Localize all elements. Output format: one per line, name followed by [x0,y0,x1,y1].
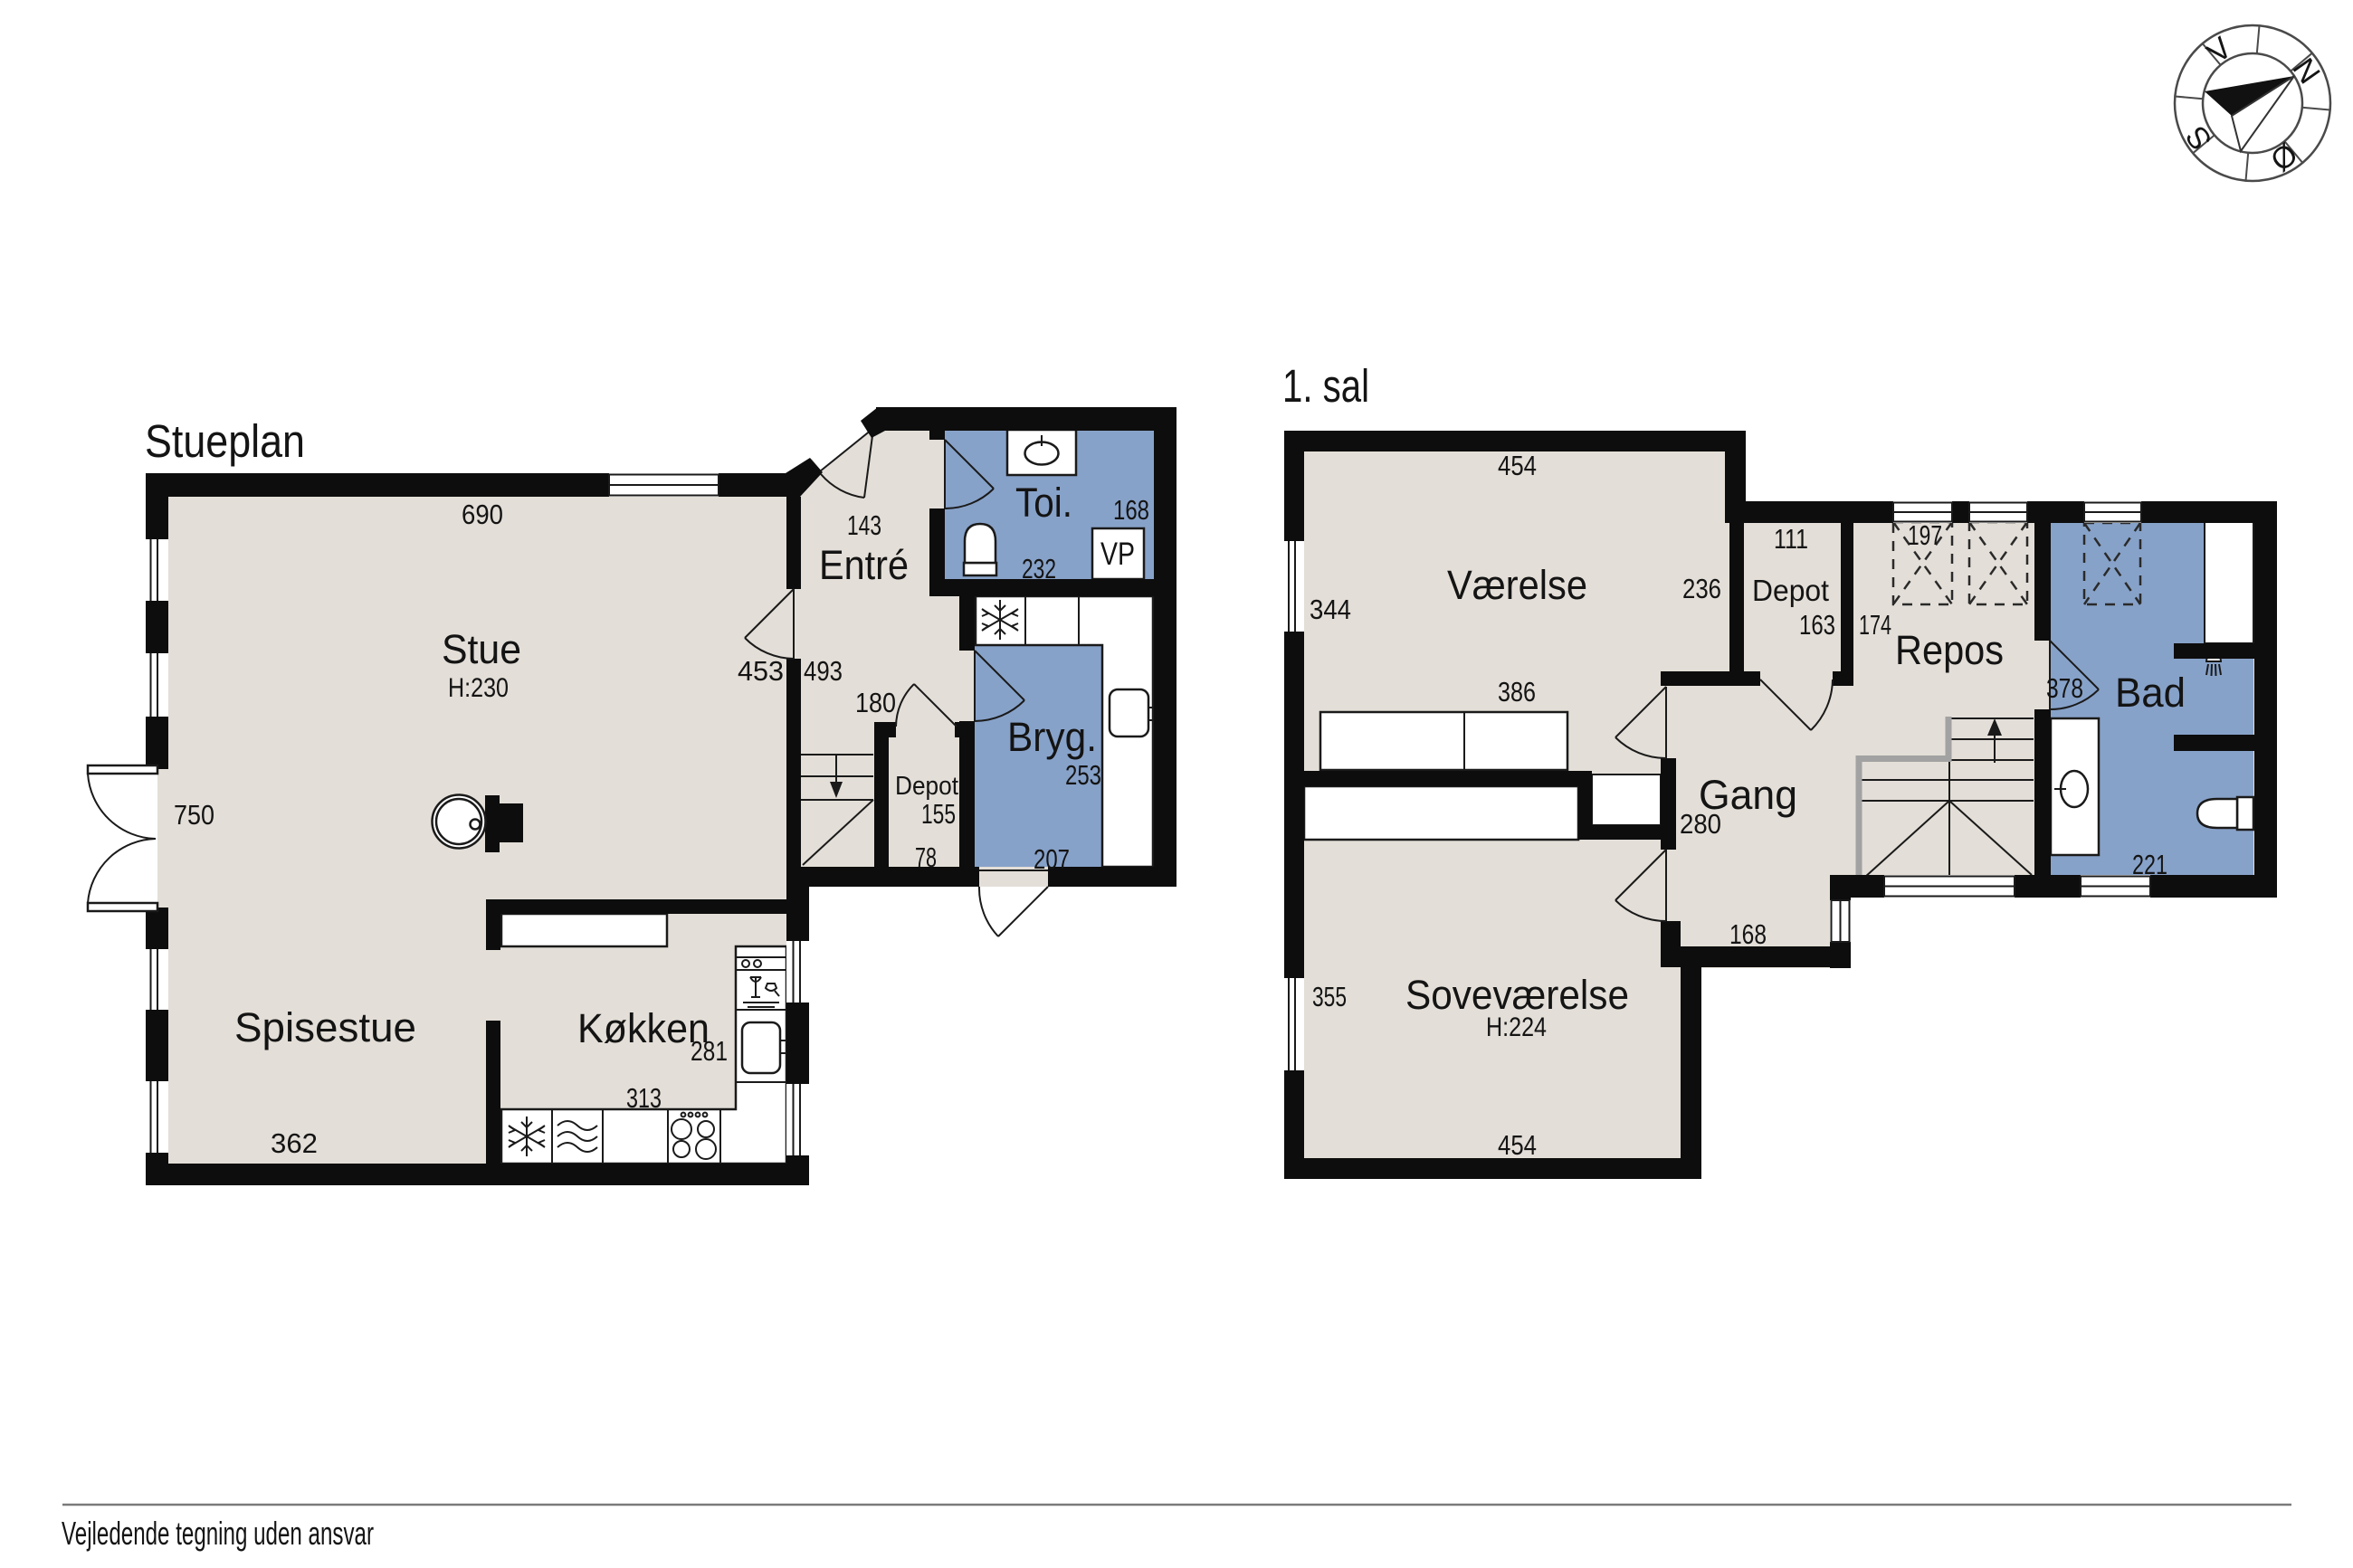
svg-text:750: 750 [174,799,214,831]
svg-text:253: 253 [1065,759,1101,791]
svg-text:454: 454 [1498,450,1537,481]
svg-text:Stueplan: Stueplan [145,415,305,467]
svg-text:378: 378 [2046,672,2083,704]
svg-text:168: 168 [1113,494,1149,526]
svg-text:493: 493 [804,655,843,687]
svg-text:280: 280 [1680,808,1721,840]
svg-text:Depot: Depot [895,772,958,801]
svg-text:355: 355 [1312,981,1347,1012]
svg-text:Værelse: Værelse [1447,562,1587,608]
svg-text:Soveværelse: Soveværelse [1405,972,1629,1018]
svg-text:78: 78 [915,841,937,873]
svg-text:281: 281 [691,1035,728,1067]
svg-text:Entré: Entré [819,542,909,588]
svg-text:143: 143 [847,509,881,541]
svg-text:Repos: Repos [1895,627,2004,673]
svg-text:232: 232 [1022,553,1056,584]
svg-text:207: 207 [1034,843,1070,875]
svg-text:Toi.: Toi. [1015,480,1072,526]
svg-text:453: 453 [738,655,784,687]
svg-text:Vejledende tegning uden ansvar: Vejledende tegning uden ansvar [62,1515,374,1552]
svg-text:344: 344 [1310,594,1351,625]
svg-text:H:224: H:224 [1486,1012,1547,1042]
svg-text:Bad: Bad [2115,670,2186,716]
svg-text:Spisestue: Spisestue [234,1004,416,1050]
svg-text:Stue: Stue [442,626,521,672]
svg-text:155: 155 [921,798,956,830]
svg-text:180: 180 [855,687,896,718]
svg-text:VP: VP [1100,537,1135,572]
svg-text:313: 313 [626,1082,662,1114]
svg-text:163: 163 [1799,609,1835,641]
svg-text:Depot: Depot [1752,574,1829,607]
svg-text:197: 197 [1908,519,1942,551]
svg-text:174: 174 [1859,609,1891,641]
svg-text:168: 168 [1729,918,1767,950]
svg-text:1. sal: 1. sal [1282,360,1369,412]
svg-text:362: 362 [271,1127,318,1159]
svg-text:236: 236 [1682,573,1721,604]
svg-text:111: 111 [1774,523,1808,555]
svg-text:H:230: H:230 [448,673,509,703]
svg-text:454: 454 [1498,1129,1537,1161]
svg-text:386: 386 [1498,676,1536,708]
svg-text:221: 221 [2132,849,2167,880]
svg-text:Bryg.: Bryg. [1007,714,1097,760]
svg-text:690: 690 [462,499,503,530]
